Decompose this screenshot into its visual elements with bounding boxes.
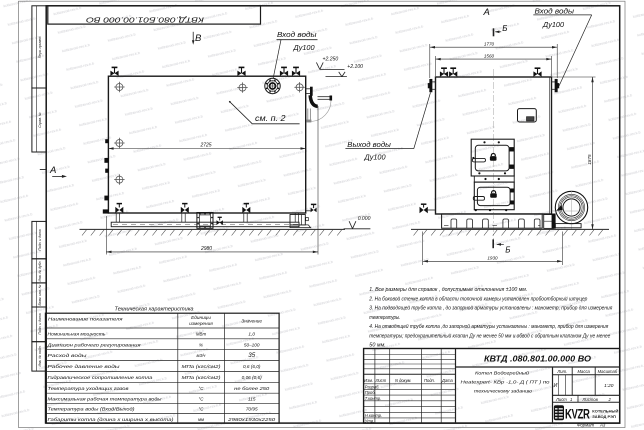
- svg-text:Температура воды (Вход/Выход): Температура воды (Вход/Выход): [48, 407, 136, 412]
- svg-text:КВТД .080.801.00.000 ВО: КВТД .080.801.00.000 ВО: [484, 354, 592, 364]
- svg-text:Ду100: Ду100: [364, 153, 386, 162]
- svg-text:Лист: Лист: [555, 397, 567, 402]
- svg-text:МПа (кгс/см2): МПа (кгс/см2): [182, 364, 222, 369]
- svg-text:1:20: 1:20: [604, 383, 614, 389]
- svg-text:1875: 1875: [587, 154, 592, 165]
- svg-text:А: А: [49, 165, 56, 176]
- svg-text:1770: 1770: [484, 42, 495, 47]
- svg-text:Вход воды: Вход воды: [535, 6, 575, 15]
- svg-text:Масштаб: Масштаб: [598, 369, 618, 374]
- svg-text:Диапазон рабочего регулировани: Диапазон рабочего регулирования: [46, 342, 141, 347]
- svg-text:Гидравлическое сопротивление к: Гидравлическое сопротивление котла: [48, 375, 153, 380]
- svg-text:Выход воды: Выход воды: [347, 140, 391, 149]
- svg-text:Изм.: Изм.: [364, 378, 373, 383]
- svg-text:Номинальная мощность: Номинальная мощность: [48, 332, 107, 337]
- svg-text:Формат: Формат: [577, 423, 594, 428]
- svg-text:N докум.: N докум.: [395, 378, 412, 383]
- svg-text:Расход воды: Расход воды: [48, 353, 88, 358]
- svg-text:Габариты котла (длина х ширина: Габариты котла (длина х ширина х высота): [48, 417, 175, 422]
- svg-text:Максимальная рабочая температу: Максимальная рабочая температура воды: [48, 397, 163, 402]
- svg-text:35: 35: [248, 352, 255, 359]
- svg-text:И: И: [553, 383, 557, 389]
- svg-text:Наименование показателя: Наименование показателя: [48, 317, 123, 322]
- svg-text:Н.контр.: Н.контр.: [365, 413, 382, 418]
- svg-text:Heatexpert- КВр -1,0- Д ( ПТ ): Heatexpert- КВр -1,0- Д ( ПТ ) по: [461, 380, 550, 386]
- svg-text:Разраб.: Разраб.: [365, 385, 380, 390]
- svg-text:мм: мм: [198, 417, 204, 422]
- svg-text:Инв. № подл.: Инв. № подл.: [38, 345, 42, 366]
- svg-text:115: 115: [248, 397, 256, 402]
- svg-text:температуры; предохранительный: температуры; предохранительный клапан Ду…: [369, 332, 610, 339]
- svg-text:Взам. инв. №: Взам. инв. №: [38, 284, 42, 305]
- svg-text:Ду100: Ду100: [293, 43, 315, 52]
- svg-text:В: В: [195, 33, 202, 44]
- svg-text:Подп.: Подп.: [424, 378, 435, 383]
- svg-text:Утв.: Утв.: [365, 418, 374, 423]
- svg-text:+2.100: +2.100: [347, 64, 363, 70]
- svg-text:Масса: Масса: [578, 369, 591, 374]
- svg-text:1560: 1560: [484, 54, 495, 59]
- svg-text:Б: Б: [502, 24, 507, 33]
- svg-text:Значение: Значение: [241, 319, 262, 324]
- svg-text:1930: 1930: [487, 255, 498, 260]
- svg-text:Подп. и дата: Подп. и дата: [38, 229, 42, 250]
- svg-text:КВТД.080.Б01.00.000 ВО: КВТД.080.Б01.00.000 ВО: [85, 15, 204, 22]
- svg-text:+2.250: +2.250: [323, 57, 339, 63]
- svg-text:температуры.: температуры.: [369, 315, 400, 321]
- svg-text:А: А: [483, 7, 490, 18]
- svg-text:°С: °С: [199, 386, 205, 391]
- svg-text:Лит.: Лит.: [556, 369, 567, 374]
- svg-text:Справ. №: Справ. №: [38, 112, 42, 128]
- svg-text:1,0: 1,0: [248, 332, 255, 337]
- svg-text:Листов: Листов: [582, 397, 599, 402]
- svg-text:2. На боковой стенке котла в: 2. На боковой стенке котла в области топ…: [368, 295, 587, 302]
- svg-text:ЗАВОД РЭП: ЗАВОД РЭП: [592, 414, 616, 419]
- svg-text:МПа (кгс/см2): МПа (кгс/см2): [182, 375, 222, 380]
- svg-text:Вход воды: Вход воды: [277, 30, 317, 39]
- svg-text:КОТЕЛЬНЫЙ: КОТЕЛЬНЫЙ: [592, 408, 618, 413]
- svg-text:2980: 2980: [200, 246, 212, 252]
- svg-text:0,6 (6,0): 0,6 (6,0): [243, 364, 261, 369]
- svg-text:Техническая характеристика: Техническая характеристика: [115, 306, 194, 312]
- svg-text:Б: Б: [505, 246, 510, 255]
- svg-text:Котел Водогрейный: Котел Водогрейный: [475, 370, 529, 377]
- svg-text:Единицы: Единицы: [191, 315, 211, 320]
- svg-text:Подп. и дата: Подп. и дата: [38, 313, 42, 334]
- svg-text:50–100: 50–100: [244, 342, 260, 347]
- svg-text:2980х1930х2250: 2980х1930х2250: [227, 417, 276, 422]
- svg-text:м3/ч: м3/ч: [197, 353, 207, 358]
- svg-text:измерения: измерения: [189, 321, 213, 326]
- svg-text:3. На подводящей трубе котла: 3. На подводящей трубе котла , до запорн…: [369, 305, 612, 312]
- svg-text:°С: °С: [199, 397, 205, 402]
- svg-text:Проб.: Проб.: [365, 390, 376, 395]
- svg-text:1: 1: [570, 397, 572, 402]
- svg-text:°С: °С: [199, 407, 205, 412]
- svg-text:см. п. 2: см. п. 2: [255, 114, 286, 123]
- svg-text:Температура уходящих газов: Температура уходящих газов: [48, 386, 130, 391]
- svg-text:техническому заданию: техническому заданию: [474, 389, 532, 395]
- svg-text:70/95: 70/95: [246, 407, 258, 412]
- svg-text:KVZR: KVZR: [565, 406, 590, 421]
- svg-text:4. На отводящей трубе котла ,: 4. На отводящей трубе котла ,до запорной…: [369, 323, 608, 330]
- svg-text:Лист: Лист: [375, 378, 387, 383]
- svg-text:А3: А3: [599, 423, 606, 428]
- svg-text:Инв. № дубл.: Инв. № дубл.: [38, 261, 42, 282]
- svg-text:2725: 2725: [199, 143, 211, 149]
- svg-text:Рабочее давление воды: Рабочее давление воды: [48, 364, 121, 369]
- svg-text:МВт: МВт: [196, 332, 207, 337]
- svg-text:%: %: [199, 342, 203, 347]
- svg-text:Ду100: Ду100: [542, 20, 564, 29]
- svg-text:0.000: 0.000: [358, 216, 371, 222]
- svg-text:Т.контр.: Т.контр.: [365, 396, 382, 401]
- svg-text:0,06 (0,6): 0,06 (0,6): [242, 375, 263, 380]
- svg-text:50 мм.: 50 мм.: [369, 343, 386, 349]
- svg-text:не более 250: не более 250: [234, 386, 269, 391]
- svg-text:Дата: Дата: [441, 378, 454, 383]
- svg-text:Перв. примен.: Перв. примен.: [38, 36, 42, 59]
- svg-text:1. Все размеры для справок ,: 1. Все размеры для справок , допустимые …: [369, 287, 527, 293]
